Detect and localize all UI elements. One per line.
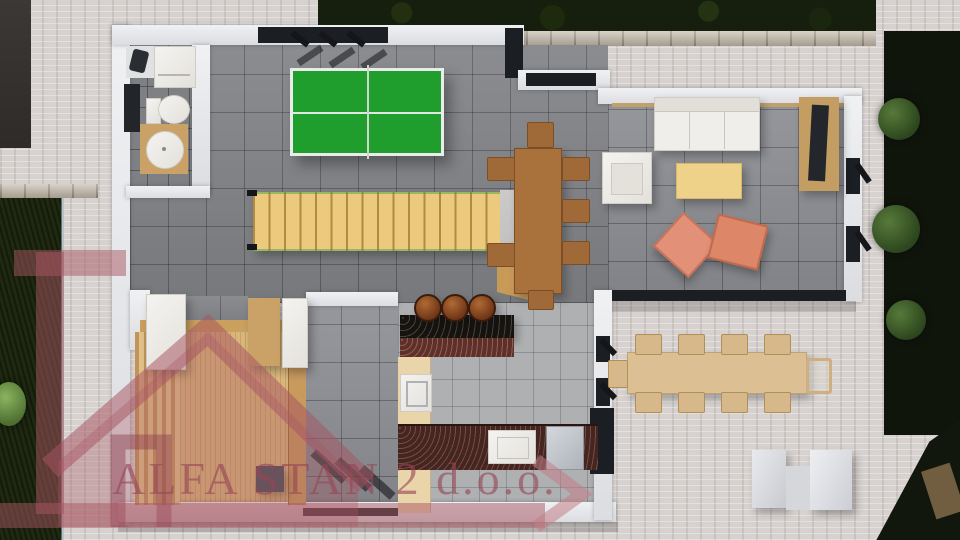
outdoor-chair-top-4 <box>764 334 791 355</box>
outdoor-chair-bottom-3 <box>721 392 748 413</box>
sofa-seam-2 <box>724 111 725 149</box>
wall-bathroom-bottom <box>126 186 210 198</box>
window-step <box>526 73 596 86</box>
washing-machine-lid-line <box>158 74 190 76</box>
kitchen-sink <box>400 374 432 412</box>
stair-post-bottom <box>247 244 257 250</box>
outdoor-bench-floor <box>786 466 810 510</box>
curb-line-left <box>61 198 64 540</box>
outdoor-chair-end-right <box>806 358 832 394</box>
stove <box>488 430 536 464</box>
kitchen-counter-top <box>400 338 514 357</box>
bathroom-mirror <box>124 84 140 132</box>
dining-chair-left-1 <box>487 157 515 181</box>
dining-chair-left-2 <box>487 243 515 267</box>
ping-pong-table <box>290 68 444 156</box>
outdoor-table <box>627 352 807 394</box>
hall-cabinet-wood <box>248 298 280 366</box>
terrace-shadow <box>606 301 856 312</box>
outdoor-chair-top-1 <box>635 334 662 355</box>
dining-chair-head-bottom <box>528 290 554 310</box>
outdoor-chair-bottom-2 <box>678 392 705 413</box>
stove-burner-lines <box>497 437 529 459</box>
sauna-step-stool <box>256 466 284 492</box>
tree-right-3 <box>886 300 926 340</box>
vanity-drain-dot <box>162 147 166 151</box>
outdoor-bench-left-panel <box>752 450 786 508</box>
bar-stool-2 <box>441 294 469 322</box>
dining-chair-right-3 <box>562 241 590 265</box>
dining-table <box>514 148 562 294</box>
glass-wall-living <box>606 290 846 301</box>
dining-chair-head-top <box>527 122 554 148</box>
armchair-seat <box>611 163 643 195</box>
washing-machine <box>154 46 196 88</box>
bar-stool-1 <box>414 294 442 322</box>
outdoor-bench-right-panel <box>810 450 852 510</box>
outdoor-chair-bottom-4 <box>764 392 791 413</box>
kitchen-appliance <box>546 426 584 470</box>
staircase <box>253 192 500 251</box>
hall-cabinet-white <box>282 298 308 368</box>
toilet-bowl <box>158 95 190 124</box>
wardrobe <box>146 294 186 370</box>
grass-left <box>0 198 62 540</box>
wall-right <box>844 96 862 302</box>
tree-right-2 <box>872 205 920 253</box>
outdoor-chair-top-2 <box>678 334 705 355</box>
armchair <box>602 152 652 204</box>
dark-corner-top-left <box>0 0 31 148</box>
sofa-seam-1 <box>689 111 690 149</box>
stone-wall-left <box>0 184 98 198</box>
wall-bottom-shadow <box>118 522 618 532</box>
wall-stair-hall-top <box>306 292 398 306</box>
ping-pong-net <box>367 65 369 159</box>
kitchen-sink-basin <box>406 381 428 407</box>
dining-chair-right-2 <box>562 199 590 223</box>
outdoor-chair-bottom-1 <box>635 392 662 413</box>
floorplan-render: ALFA STAN 2 d.o.o. <box>0 0 960 540</box>
tree-right-1 <box>878 98 920 140</box>
coffee-table <box>676 163 742 199</box>
outdoor-chair-end-left <box>608 360 628 388</box>
outdoor-chair-top-3 <box>721 334 748 355</box>
dining-chair-right-1 <box>562 157 590 181</box>
stair-post-top <box>247 190 257 196</box>
stair-hall-threshold <box>303 508 398 516</box>
bar-stool-3 <box>468 294 496 322</box>
sofa-back <box>655 98 759 112</box>
sofa <box>654 97 760 151</box>
